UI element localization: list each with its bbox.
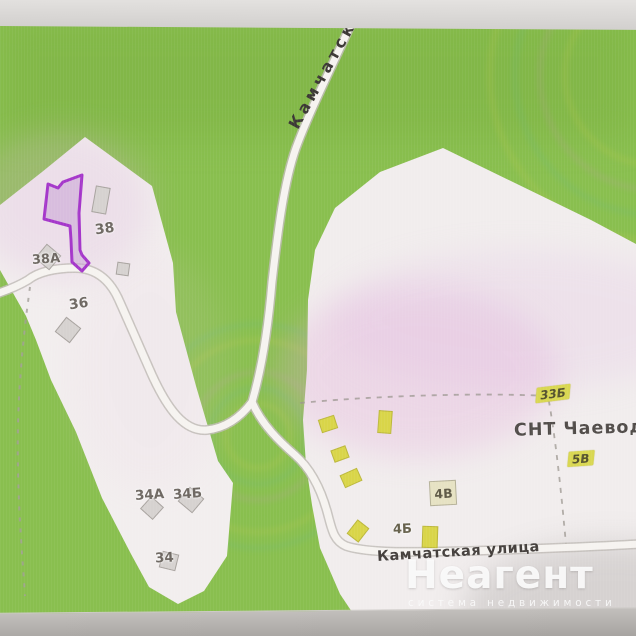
plot-label-34: 34: [155, 550, 175, 567]
snt-area-label: СНТ Чаевод: [514, 417, 636, 440]
plot-label-4b: 4Б: [393, 522, 412, 538]
screen-top-bezel: [0, 0, 636, 30]
watermark-logo: Неагент: [405, 556, 594, 595]
plot-label-38: 38: [94, 220, 116, 239]
plot-label-34b: 34Б: [172, 485, 202, 503]
plot-label-34a: 34А: [134, 486, 164, 504]
plot-label-5v: 5В: [567, 450, 594, 467]
plot-label-36: 36: [68, 295, 90, 314]
plot-label-38a: 38А: [32, 251, 61, 268]
plot-label-4v: 4В: [430, 480, 456, 505]
map-photo: 38 38А 36 34А 34Б 34 4Б 33Б 5В 4В СНТ Ча…: [0, 0, 636, 636]
building-icon: [116, 262, 130, 276]
building-icon-yellow: [378, 411, 393, 434]
screen-bottom-bezel: [0, 607, 636, 636]
